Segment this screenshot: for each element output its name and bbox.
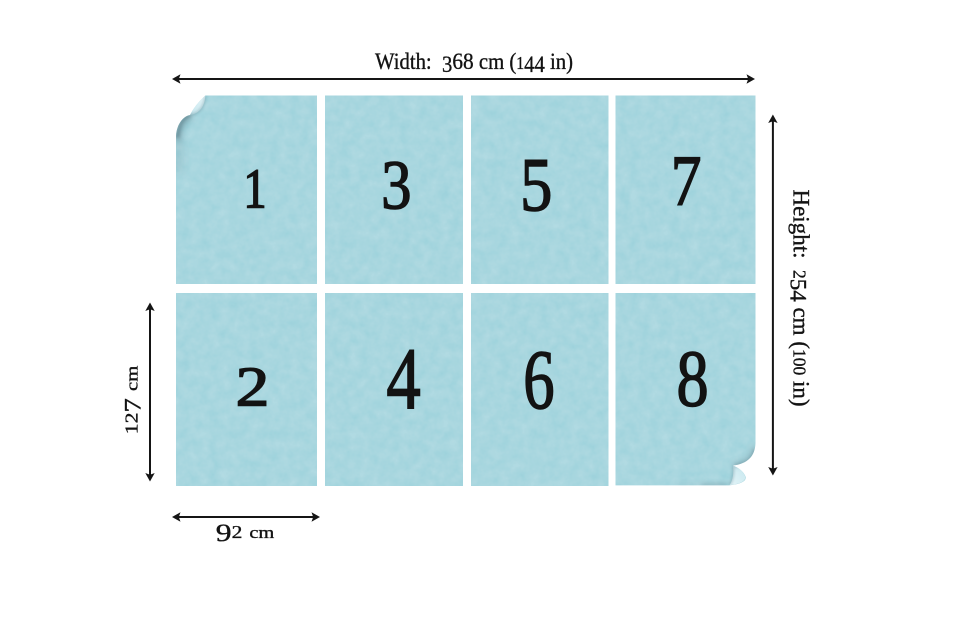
- svg-text:3: 3: [381, 148, 411, 225]
- svg-text:2: 2: [236, 356, 270, 418]
- svg-text:5: 5: [520, 143, 552, 227]
- svg-text:1: 1: [243, 158, 266, 220]
- svg-text:4: 4: [386, 331, 420, 428]
- svg-text:6: 6: [523, 334, 554, 427]
- svg-text:8: 8: [677, 334, 709, 423]
- svg-text:7: 7: [671, 142, 702, 222]
